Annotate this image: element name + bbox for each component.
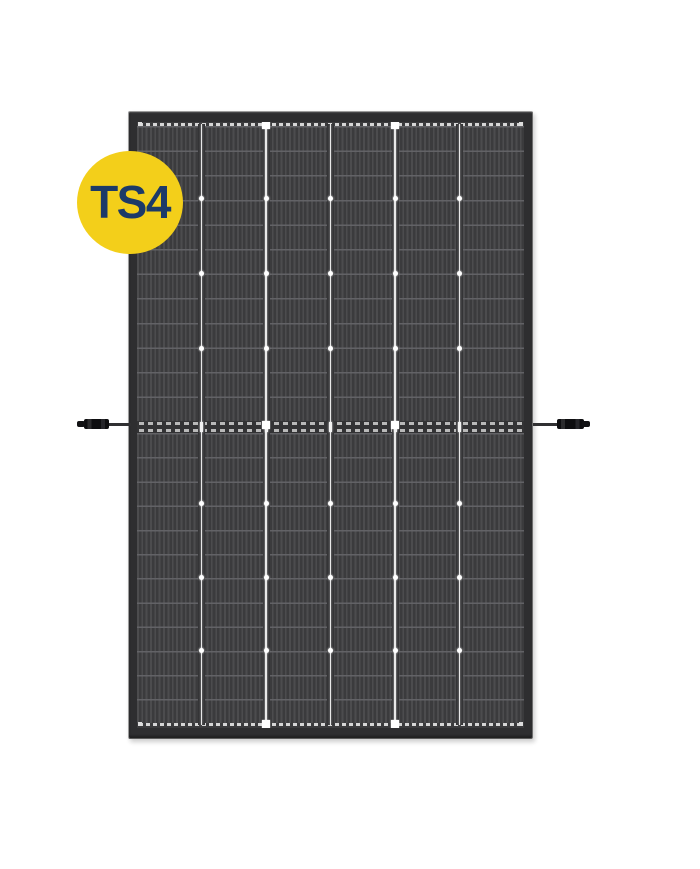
solder-dot bbox=[264, 271, 269, 276]
busbar-junction bbox=[391, 122, 399, 129]
connector-tip bbox=[582, 421, 590, 427]
solder-dot bbox=[457, 346, 462, 351]
solder-dot bbox=[199, 648, 204, 653]
solder-dot bbox=[393, 271, 398, 276]
solder-dot bbox=[328, 346, 333, 351]
solder-dot bbox=[328, 648, 333, 653]
mc4-connector-right-icon bbox=[557, 419, 584, 429]
solder-dot bbox=[393, 575, 398, 580]
solder-dot bbox=[328, 501, 333, 506]
solder-dot bbox=[393, 648, 398, 653]
busbar-junction bbox=[262, 122, 270, 129]
busbar-junction bbox=[262, 720, 270, 728]
corner-tick bbox=[519, 722, 523, 726]
solder-dot bbox=[393, 501, 398, 506]
solder-dot bbox=[264, 501, 269, 506]
solder-dot bbox=[328, 271, 333, 276]
solder-dot bbox=[328, 575, 333, 580]
solder-dot bbox=[457, 575, 462, 580]
solder-dot bbox=[199, 501, 204, 506]
solder-dot bbox=[264, 575, 269, 580]
busbar-junction bbox=[262, 421, 270, 429]
solder-dot bbox=[199, 196, 204, 201]
corner-tick bbox=[138, 722, 142, 726]
mid-busbar-node bbox=[200, 422, 203, 432]
ts4-badge: TS4 bbox=[77, 151, 183, 254]
solar-panel bbox=[128, 111, 533, 739]
mid-busbar-node bbox=[329, 422, 332, 432]
product-image: TS4 bbox=[0, 0, 700, 869]
solder-dot bbox=[457, 196, 462, 201]
solder-dot bbox=[199, 346, 204, 351]
solder-dot bbox=[264, 346, 269, 351]
mid-busbar-node bbox=[458, 422, 461, 432]
busbar-junction bbox=[391, 720, 399, 728]
mc4-connector-left-icon bbox=[84, 419, 109, 429]
solder-dot bbox=[457, 271, 462, 276]
connector-tip bbox=[77, 421, 85, 427]
solder-dot bbox=[328, 196, 333, 201]
cable-wire bbox=[533, 423, 559, 426]
solder-dot bbox=[393, 196, 398, 201]
solder-dot bbox=[457, 501, 462, 506]
corner-tick bbox=[138, 122, 142, 126]
solder-dot bbox=[457, 648, 462, 653]
corner-tick bbox=[519, 122, 523, 126]
panel-cell-grid bbox=[137, 122, 524, 728]
solder-dot bbox=[199, 271, 204, 276]
solder-dot bbox=[264, 648, 269, 653]
solder-dot bbox=[393, 346, 398, 351]
solder-dot bbox=[199, 575, 204, 580]
busbar-junction bbox=[391, 421, 399, 429]
badge-label: TS4 bbox=[90, 179, 170, 225]
solder-dot bbox=[264, 196, 269, 201]
